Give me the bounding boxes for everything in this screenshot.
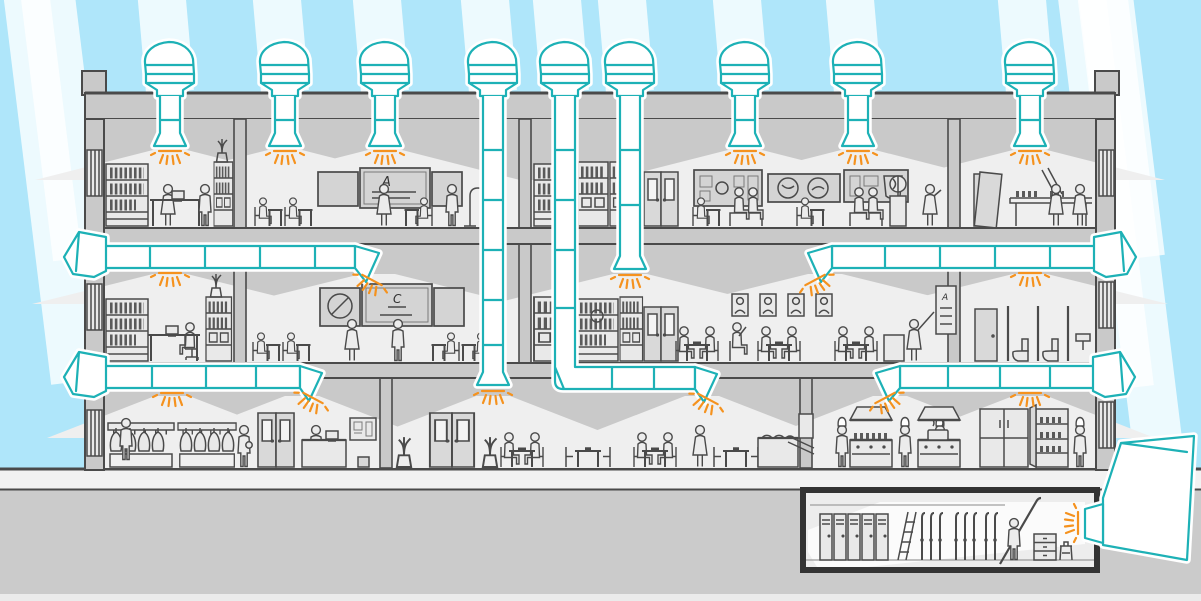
- parapet-right: [1095, 71, 1119, 95]
- bookshelf: [576, 299, 618, 361]
- backpack: [246, 442, 252, 448]
- partition-wall: [519, 244, 531, 363]
- board-right: [434, 288, 464, 326]
- open-cabinet-door: [1030, 405, 1036, 467]
- scene-svg: A: [0, 0, 1201, 601]
- fridge: [980, 409, 1028, 467]
- roof-slab: [85, 93, 1115, 119]
- double-door: [644, 307, 678, 361]
- open-door: [974, 172, 1002, 228]
- reception-counter: [302, 440, 346, 467]
- partition-wall: [380, 378, 392, 468]
- floor-slab: [85, 228, 1115, 244]
- double-door: [644, 172, 678, 226]
- archive-shelf: [578, 162, 608, 226]
- flipchart-letter: A: [941, 293, 948, 303]
- podium: [884, 335, 904, 361]
- bookshelf: [106, 299, 148, 361]
- washroom-door: [975, 309, 997, 361]
- storage-shelf: [206, 297, 232, 361]
- partition-wall: [234, 119, 246, 228]
- parapet-left: [82, 71, 106, 95]
- partition-wall: [948, 119, 960, 228]
- illustration-building-cross-section: A: [0, 0, 1201, 601]
- blackboard-letter: C: [393, 292, 402, 306]
- bookshelf: [106, 164, 148, 226]
- range-hood: [918, 407, 960, 420]
- cooking-pot: [928, 430, 948, 440]
- reception-monitor: [326, 431, 338, 441]
- drawer-unit: [1034, 534, 1056, 560]
- partition-wall: [519, 119, 531, 228]
- computer-monitor: [166, 326, 178, 336]
- blackboard: [360, 168, 430, 208]
- dining-double-door: [430, 413, 474, 467]
- prep-counter: [850, 440, 892, 467]
- basement-ski-storage: [803, 490, 1097, 572]
- globe: [890, 176, 906, 226]
- storage-shelf: [620, 297, 643, 361]
- basement-lockers: [820, 514, 888, 560]
- computer-monitor: [172, 191, 184, 201]
- entrance-double-door: [258, 413, 294, 467]
- pantry-cabinet: [1030, 405, 1068, 467]
- board-left: [318, 172, 358, 206]
- ground-strip: [0, 594, 1201, 601]
- serving-counter: [758, 435, 798, 467]
- sink: [1076, 334, 1090, 341]
- storage-shelf: [214, 162, 233, 226]
- stove-counter: [918, 440, 960, 467]
- trash-bin: [358, 457, 369, 467]
